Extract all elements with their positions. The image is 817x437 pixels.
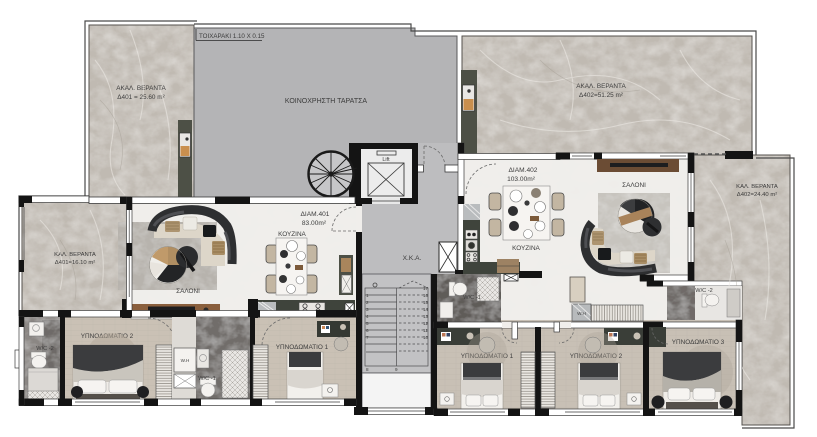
svg-text:7: 7 (366, 335, 369, 340)
svg-text:6: 6 (366, 328, 369, 333)
svg-text:ΚΟΙΝΟΧΡΗΣΤΗ ΤΑΡΑΤΣΑ: ΚΟΙΝΟΧΡΗΣΤΗ ΤΑΡΑΤΣΑ (285, 98, 368, 105)
svg-text:1: 1 (366, 293, 369, 298)
svg-text:103.00m²: 103.00m² (507, 176, 536, 183)
svg-text:Δ401 = 25.60 m²: Δ401 = 25.60 m² (117, 94, 164, 101)
svg-text:5: 5 (366, 321, 369, 326)
svg-text:W/C -1: W/C -1 (198, 376, 215, 382)
svg-text:Lift: Lift (382, 157, 390, 163)
svg-text:ΥΠΝΟΔΩΜΑΤΙΟ 1: ΥΠΝΟΔΩΜΑΤΙΟ 1 (276, 344, 329, 351)
svg-text:12: 12 (423, 321, 429, 326)
svg-text:3: 3 (366, 307, 369, 312)
svg-text:ΚΟΥΖΙΝΑ: ΚΟΥΖΙΝΑ (278, 231, 306, 238)
svg-text:ΔΙΑΜ.402: ΔΙΑΜ.402 (509, 167, 538, 174)
svg-text:16: 16 (423, 293, 429, 298)
svg-text:ΚΑΛ. ΒΕΡΑΝΤΑ: ΚΑΛ. ΒΕΡΑΝΤΑ (736, 184, 778, 190)
svg-text:4: 4 (366, 314, 369, 319)
svg-text:13: 13 (423, 314, 429, 319)
svg-text:Δ401=16.10 m²: Δ401=16.10 m² (55, 260, 95, 266)
svg-text:8: 8 (366, 367, 369, 372)
svg-text:Δ402=51.25 m²: Δ402=51.25 m² (579, 92, 623, 99)
svg-text:ΑΚΑΛ. ΒΕΡΑΝΤΑ: ΑΚΑΛ. ΒΕΡΑΝΤΑ (116, 85, 166, 92)
svg-text:W.H: W.H (181, 358, 190, 363)
svg-text:W/C -2: W/C -2 (36, 346, 53, 352)
svg-text:17: 17 (423, 286, 429, 291)
svg-text:W/C -2: W/C -2 (695, 288, 712, 294)
svg-text:W.H: W.H (577, 311, 586, 316)
svg-text:Δ402=24.40 m²: Δ402=24.40 m² (737, 192, 777, 198)
svg-text:ΔΙΑΜ.401: ΔΙΑΜ.401 (301, 211, 330, 218)
svg-text:ΥΠΝΟΔΩΜΑΤΙΟ 3: ΥΠΝΟΔΩΜΑΤΙΟ 3 (672, 339, 725, 346)
svg-text:83.00m²: 83.00m² (302, 220, 327, 227)
svg-text:9: 9 (395, 367, 398, 372)
svg-text:W/C -1: W/C -1 (463, 295, 480, 301)
svg-text:15: 15 (423, 300, 429, 305)
svg-text:ΣΑΛΟΝΙ: ΣΑΛΟΝΙ (622, 182, 646, 189)
svg-text:Χ.Κ.Α.: Χ.Κ.Α. (403, 255, 422, 262)
svg-text:14: 14 (423, 307, 429, 312)
svg-text:ΚΟΥΖΙΝΑ: ΚΟΥΖΙΝΑ (512, 245, 540, 252)
svg-text:10: 10 (423, 335, 429, 340)
svg-text:11: 11 (423, 328, 428, 333)
svg-text:ΑΚΑΛ. ΒΕΡΑΝΤΑ: ΑΚΑΛ. ΒΕΡΑΝΤΑ (576, 83, 626, 90)
svg-text:ΤΟΙΧΑΡΑΚΙ 1.10 X 0.15: ΤΟΙΧΑΡΑΚΙ 1.10 X 0.15 (199, 33, 265, 40)
svg-text:ΣΑΛΟΝΙ: ΣΑΛΟΝΙ (176, 288, 200, 295)
svg-text:2: 2 (366, 300, 369, 305)
